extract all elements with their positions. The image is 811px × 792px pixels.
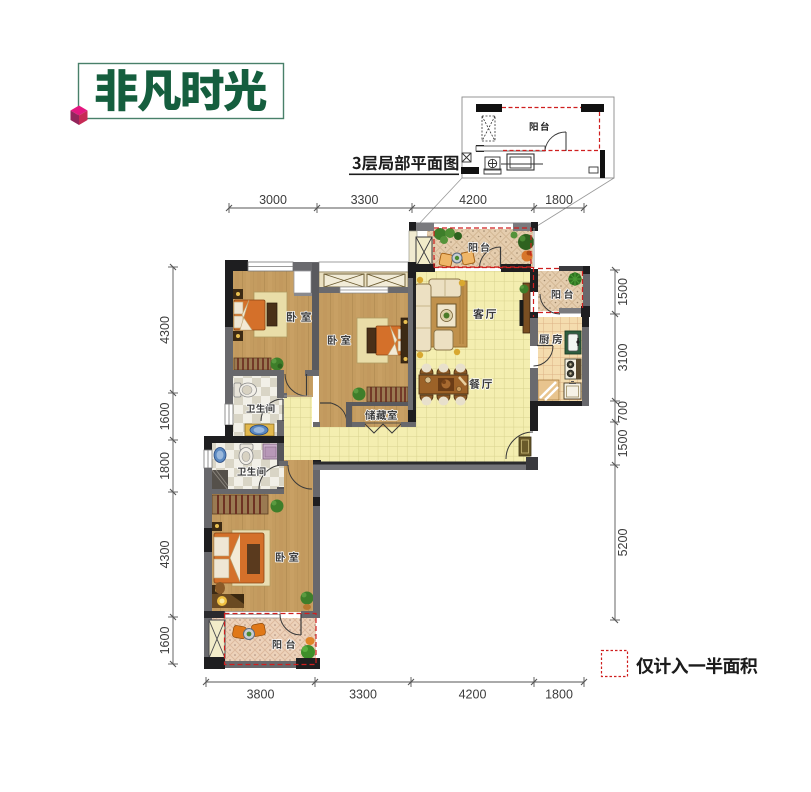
svg-text:1500: 1500 <box>616 430 630 458</box>
svg-text:3300: 3300 <box>349 688 377 702</box>
svg-text:1800: 1800 <box>158 452 172 480</box>
svg-text:1600: 1600 <box>158 627 172 655</box>
svg-text:700: 700 <box>616 401 630 422</box>
svg-text:3100: 3100 <box>616 344 630 372</box>
svg-text:5200: 5200 <box>616 529 630 557</box>
svg-text:3000: 3000 <box>259 193 287 207</box>
svg-text:4300: 4300 <box>158 541 172 569</box>
svg-text:4200: 4200 <box>459 688 487 702</box>
svg-text:1800: 1800 <box>545 688 573 702</box>
svg-text:3300: 3300 <box>351 193 379 207</box>
svg-text:1600: 1600 <box>158 403 172 431</box>
svg-text:4200: 4200 <box>459 193 487 207</box>
svg-text:1500: 1500 <box>616 278 630 306</box>
svg-text:1800: 1800 <box>545 193 573 207</box>
svg-text:4300: 4300 <box>158 316 172 344</box>
svg-text:3800: 3800 <box>247 688 275 702</box>
